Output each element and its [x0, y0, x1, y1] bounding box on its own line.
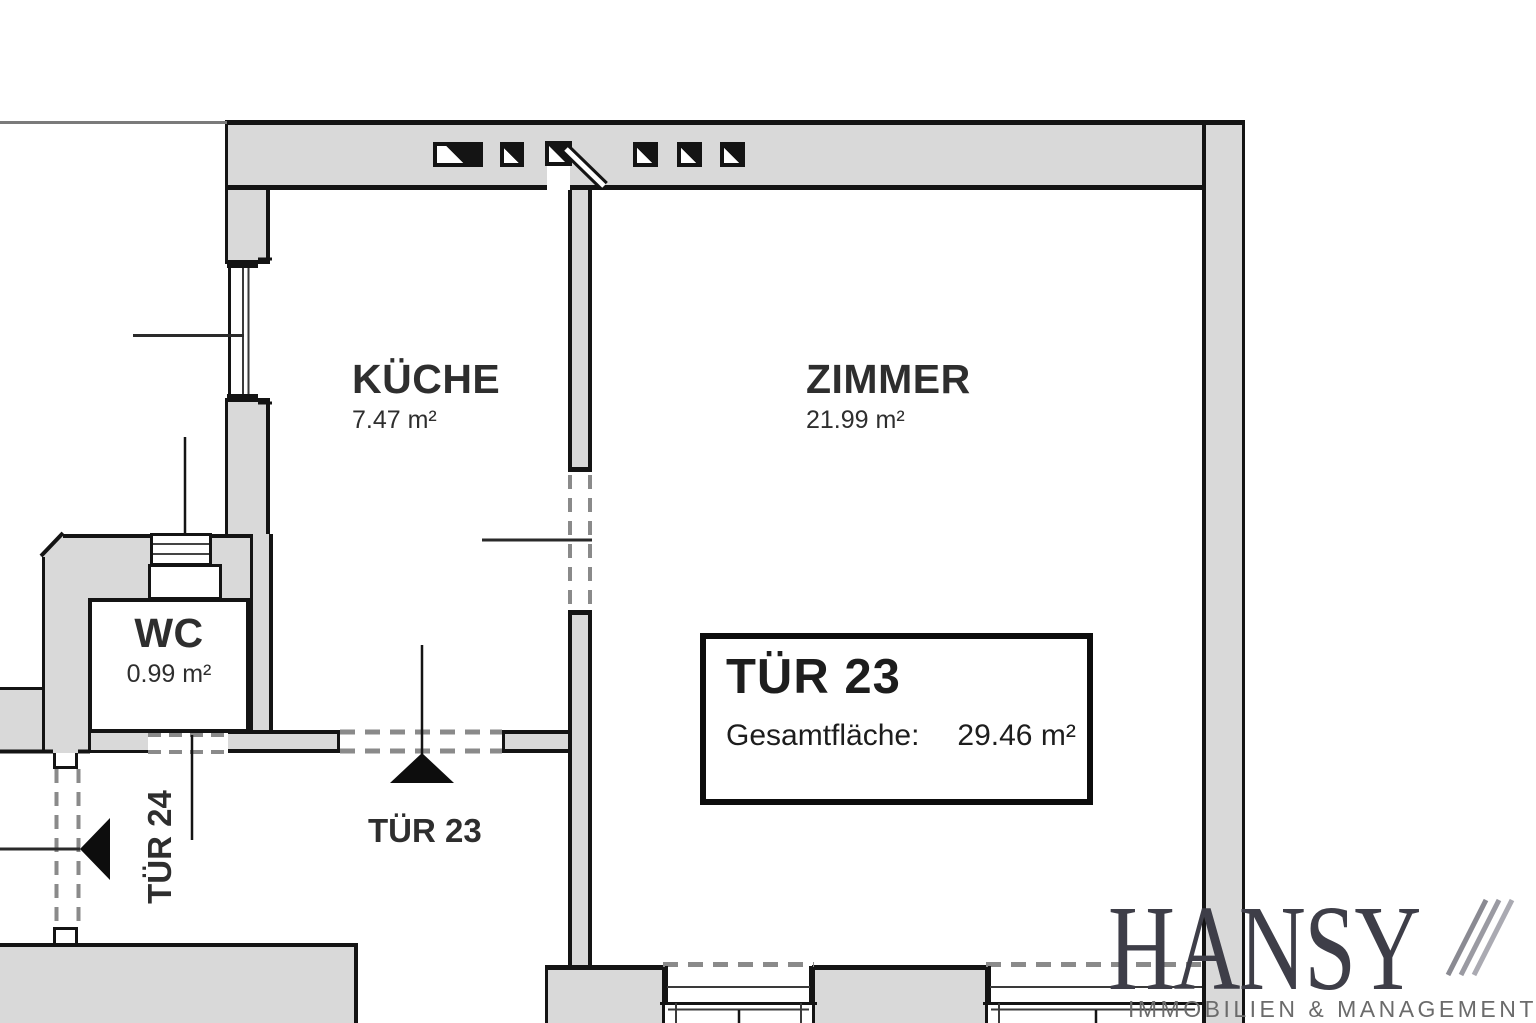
- door-label-tuer24: TÜR 24: [141, 787, 179, 907]
- wc-area: 0.99 m²: [98, 661, 240, 687]
- zimmer-area: 21.99 m²: [806, 407, 971, 433]
- total-area-value: 29.46 m²: [957, 719, 1075, 752]
- wc-name: WC: [98, 612, 240, 655]
- tuer24-jamb-bottom: [53, 927, 78, 943]
- kueche-name: KÜCHE: [352, 358, 500, 401]
- room-label-kueche: KÜCHE 7.47 m²: [352, 358, 500, 433]
- unit-info-row: Gesamtfläche:29.46 m²: [726, 719, 1087, 753]
- room-label-zimmer: ZIMMER 21.99 m²: [806, 358, 971, 433]
- zimmer-name: ZIMMER: [806, 358, 971, 401]
- unit-info-box: TÜR 23 Gesamtfläche:29.46 m²: [700, 633, 1093, 805]
- door-label-tuer23: TÜR 23: [368, 812, 482, 850]
- logo-wordmark: HANSY: [1108, 888, 1434, 1010]
- top-door-leaf-core: [566, 149, 604, 186]
- kueche-area: 7.47 m²: [352, 407, 500, 433]
- side-door-direction-triangle: [80, 818, 110, 880]
- room-label-wc: WC 0.99 m²: [98, 612, 240, 687]
- linework-overlay: [0, 0, 1536, 1023]
- hansy-logo: HANSY IMMOBILIEN & MANAGEMENT www.hansy.…: [1108, 888, 1536, 1023]
- tuer23-direction-triangle: [390, 753, 454, 783]
- floor-plan: KÜCHE 7.47 m² ZIMMER 21.99 m² WC 0.99 m²…: [0, 0, 1536, 1023]
- tuer24-jamb-top: [53, 753, 78, 769]
- total-area-label: Gesamtfläche:: [726, 719, 919, 752]
- unit-info-title: TÜR 23: [726, 649, 1087, 705]
